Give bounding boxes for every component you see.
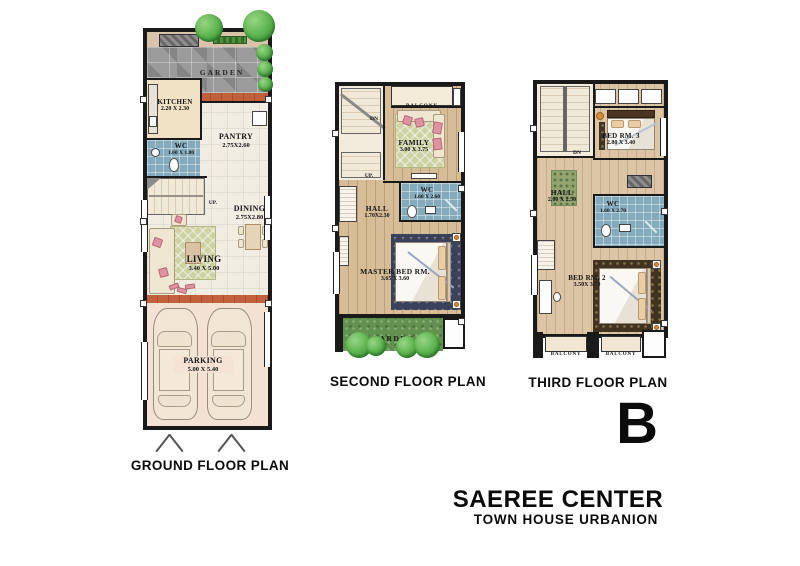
- dimension-tick: [458, 185, 465, 192]
- headboard: [607, 110, 655, 118]
- room-dims: 3.40 X 5.00: [182, 265, 226, 273]
- room-name: BALCONY: [551, 352, 582, 357]
- room-dims: 1.60 X 1.80: [163, 150, 199, 157]
- driveway-mark-line: [230, 434, 245, 453]
- room-name: KITCHEN: [151, 98, 199, 106]
- wall: [533, 332, 543, 358]
- car-windshield: [157, 331, 192, 347]
- wc-label: WC 1.60 X 2.60: [405, 186, 449, 201]
- built-in-closet: [595, 89, 616, 104]
- wall: [399, 220, 461, 222]
- desk-chair: [553, 292, 561, 302]
- washbasin-icon: [619, 224, 631, 232]
- room-dims: 5.00 X 5.40: [173, 366, 233, 374]
- room-dims: 1.60 X 2.60: [405, 194, 449, 201]
- room-dims: 2.20 X 2.30: [151, 106, 199, 113]
- window: [264, 312, 271, 367]
- lamp-icon: [454, 302, 459, 307]
- car-rear-window: [212, 395, 245, 407]
- ac-unit: [159, 34, 199, 47]
- wall: [200, 78, 202, 140]
- dimension-tick: [140, 218, 147, 225]
- room-name: GARDEN: [187, 68, 257, 77]
- room-name: MASTER BED RM.: [360, 267, 430, 276]
- tree: [258, 77, 273, 92]
- wall: [383, 86, 385, 180]
- washbasin-icon: [151, 148, 160, 157]
- stair-note: UP.: [209, 200, 217, 206]
- wall: [147, 138, 202, 140]
- dimension-tick: [332, 130, 339, 137]
- cabinet: [339, 236, 349, 266]
- window: [660, 118, 667, 156]
- parking-label: PARKING 5.00 X 5.40: [173, 356, 233, 373]
- room-dims: 1.70X2.30: [353, 213, 401, 220]
- stair-up-label: UP.: [359, 163, 379, 182]
- tree: [256, 44, 273, 61]
- tree: [257, 61, 273, 77]
- living-label: LIVING 3.40 X 5.00: [182, 254, 226, 273]
- cushion: [414, 117, 425, 128]
- wc-label: WC 1.60 X 2.70: [591, 200, 635, 215]
- tree: [195, 14, 223, 42]
- room-name: PARKING: [173, 356, 233, 366]
- room-dims: 1.60 X 2.70: [591, 208, 635, 215]
- dimension-tick: [265, 300, 272, 307]
- master-bed-label: MASTER BED RM. 3.65 X 3.60: [360, 267, 430, 283]
- stair-rail: [564, 86, 566, 152]
- dresser: [627, 175, 652, 188]
- driveway-mark-line: [168, 434, 183, 453]
- room-name: HALL: [353, 204, 401, 213]
- floor-plan-sheet: GARDEN KITCHEN 2.20 X 2.30 WC 1.60 X 1.8…: [0, 0, 800, 566]
- pillow: [638, 298, 646, 320]
- project-name: SAEREE CENTER: [438, 486, 678, 514]
- third-floor-plan: DN BED RM. 3 2.80 X 3.40 HALL 2.00 X 2.5…: [533, 80, 668, 338]
- stair-dn-label: DN: [365, 106, 383, 125]
- toilet-icon: [407, 205, 417, 218]
- dining-chair: [262, 239, 268, 248]
- wall: [593, 158, 664, 160]
- room-dims: 2.00 X 2.50: [538, 197, 586, 204]
- window: [531, 255, 538, 295]
- window: [141, 200, 148, 252]
- room-name: HALL: [538, 188, 586, 197]
- dimension-tick: [265, 218, 272, 225]
- lamp-icon: [454, 235, 459, 240]
- pillow: [438, 276, 446, 300]
- driveway-mark-line: [217, 434, 232, 453]
- room-name: PANTRY: [211, 132, 261, 142]
- unit-letter: B: [598, 396, 658, 452]
- terracotta-edge: [147, 295, 268, 303]
- pillow: [638, 272, 646, 294]
- wall: [593, 194, 664, 196]
- staircase: [540, 86, 564, 152]
- built-in-closet: [618, 89, 639, 104]
- stair-note: UP.: [365, 173, 373, 179]
- pillow: [438, 246, 446, 270]
- pillow: [611, 120, 624, 128]
- stair-note: DN: [370, 116, 378, 122]
- driveway-mark: [150, 432, 188, 454]
- car-windshield: [211, 331, 246, 347]
- dimension-tick: [661, 320, 668, 327]
- lamp-icon: [654, 262, 659, 267]
- dimension-tick: [332, 225, 339, 232]
- washbasin-icon: [425, 206, 436, 214]
- wall: [587, 332, 599, 358]
- driveway-mark-line: [155, 434, 170, 453]
- hall-label: HALL 2.00 X 2.50: [538, 188, 586, 204]
- wall: [335, 318, 343, 352]
- car-rear-window: [158, 395, 191, 407]
- lamp-icon: [596, 112, 604, 120]
- bed3-label: BED RM. 3 2.80 X 3.40: [595, 132, 647, 148]
- family-label: FAMILY 3.00 X 3.75: [390, 138, 438, 154]
- room-dims: 3.50X 3.60: [561, 282, 613, 289]
- room-dims: 3.65 X 3.60: [360, 276, 430, 283]
- kitchen-sink: [149, 116, 157, 127]
- third-floor-plan-title: THIRD FLOOR PLAN: [498, 375, 698, 390]
- bed2-label: BED RM. 2 3.50X 3.60: [561, 274, 613, 290]
- room-dims: 2.75X2.60: [211, 142, 261, 150]
- window: [458, 132, 465, 172]
- room-name: WC: [591, 200, 635, 208]
- dimension-tick: [661, 208, 668, 215]
- built-in-closet: [641, 89, 662, 104]
- room-name: WC: [163, 142, 199, 150]
- room-name: WC: [405, 186, 449, 194]
- balcony-label: BALCONY: [545, 341, 587, 360]
- dimension-tick: [140, 96, 147, 103]
- wall: [537, 156, 595, 158]
- driveway-mark: [212, 432, 250, 454]
- wardrobe: [537, 240, 555, 270]
- room-name: BALCONY: [606, 352, 637, 357]
- dining-label: DINING 2.75X2.80: [231, 204, 268, 221]
- dimension-tick: [530, 210, 537, 217]
- floor-cushion: [185, 283, 196, 289]
- room-name: DINING: [231, 204, 268, 214]
- wall: [391, 106, 461, 108]
- garden-label: GARDEN: [187, 68, 257, 77]
- desk: [539, 280, 552, 314]
- room-dims: 2.75X2.80: [231, 214, 268, 222]
- stair-up-label: UP.: [193, 190, 217, 209]
- window: [333, 252, 340, 294]
- room-name: BED RM. 2: [561, 274, 613, 282]
- dimension-tick: [458, 318, 465, 325]
- tree: [243, 10, 275, 42]
- kitchen-label: KITCHEN 2.20 X 2.30: [151, 98, 199, 114]
- dining-table: [245, 224, 261, 250]
- wall: [200, 101, 268, 103]
- refrigerator: [252, 111, 267, 126]
- hall-label: HALL 1.70X2.30: [353, 204, 401, 220]
- tree: [366, 336, 386, 356]
- second-floor-plan: DN UP. BALCONY FAMILY 3.00 X 3.75 W: [335, 82, 465, 318]
- headboard: [447, 242, 451, 302]
- dining-chair: [238, 239, 244, 248]
- balcony-ledge: [642, 330, 666, 358]
- project-subtitle: TOWN HOUSE URBANION: [446, 512, 686, 527]
- shaft: [453, 88, 461, 106]
- toilet-icon: [169, 158, 179, 172]
- wall: [593, 246, 664, 248]
- pantry-label: PANTRY 2.75X2.60: [211, 132, 261, 149]
- room-dims: 2.80 X 3.40: [595, 140, 647, 147]
- dimension-tick: [140, 300, 147, 307]
- ground-floor-plan-title: GROUND FLOOR PLAN: [110, 458, 310, 473]
- wall: [147, 78, 202, 80]
- terracotta-edge: [200, 93, 268, 101]
- second-floor-plan-title: SECOND FLOOR PLAN: [308, 374, 508, 389]
- room-dims: 3.00 X 3.75: [390, 147, 438, 154]
- dimension-tick: [265, 96, 272, 103]
- balcony-label: BALCONY: [601, 341, 641, 360]
- tv-console: [411, 173, 437, 179]
- tree: [414, 332, 440, 358]
- dimension-tick: [530, 125, 537, 132]
- dining-chair: [238, 226, 244, 235]
- window: [141, 342, 148, 400]
- wall: [593, 106, 664, 108]
- room-name: LIVING: [182, 254, 226, 265]
- headboard: [647, 268, 651, 324]
- wc-label: WC 1.60 X 1.80: [163, 142, 199, 157]
- toilet-icon: [601, 224, 611, 237]
- pillow: [628, 120, 641, 128]
- room-name: FAMILY: [390, 138, 438, 147]
- room-name: BED RM. 3: [595, 132, 647, 140]
- ground-floor-plan: GARDEN KITCHEN 2.20 X 2.30 WC 1.60 X 1.8…: [143, 28, 272, 430]
